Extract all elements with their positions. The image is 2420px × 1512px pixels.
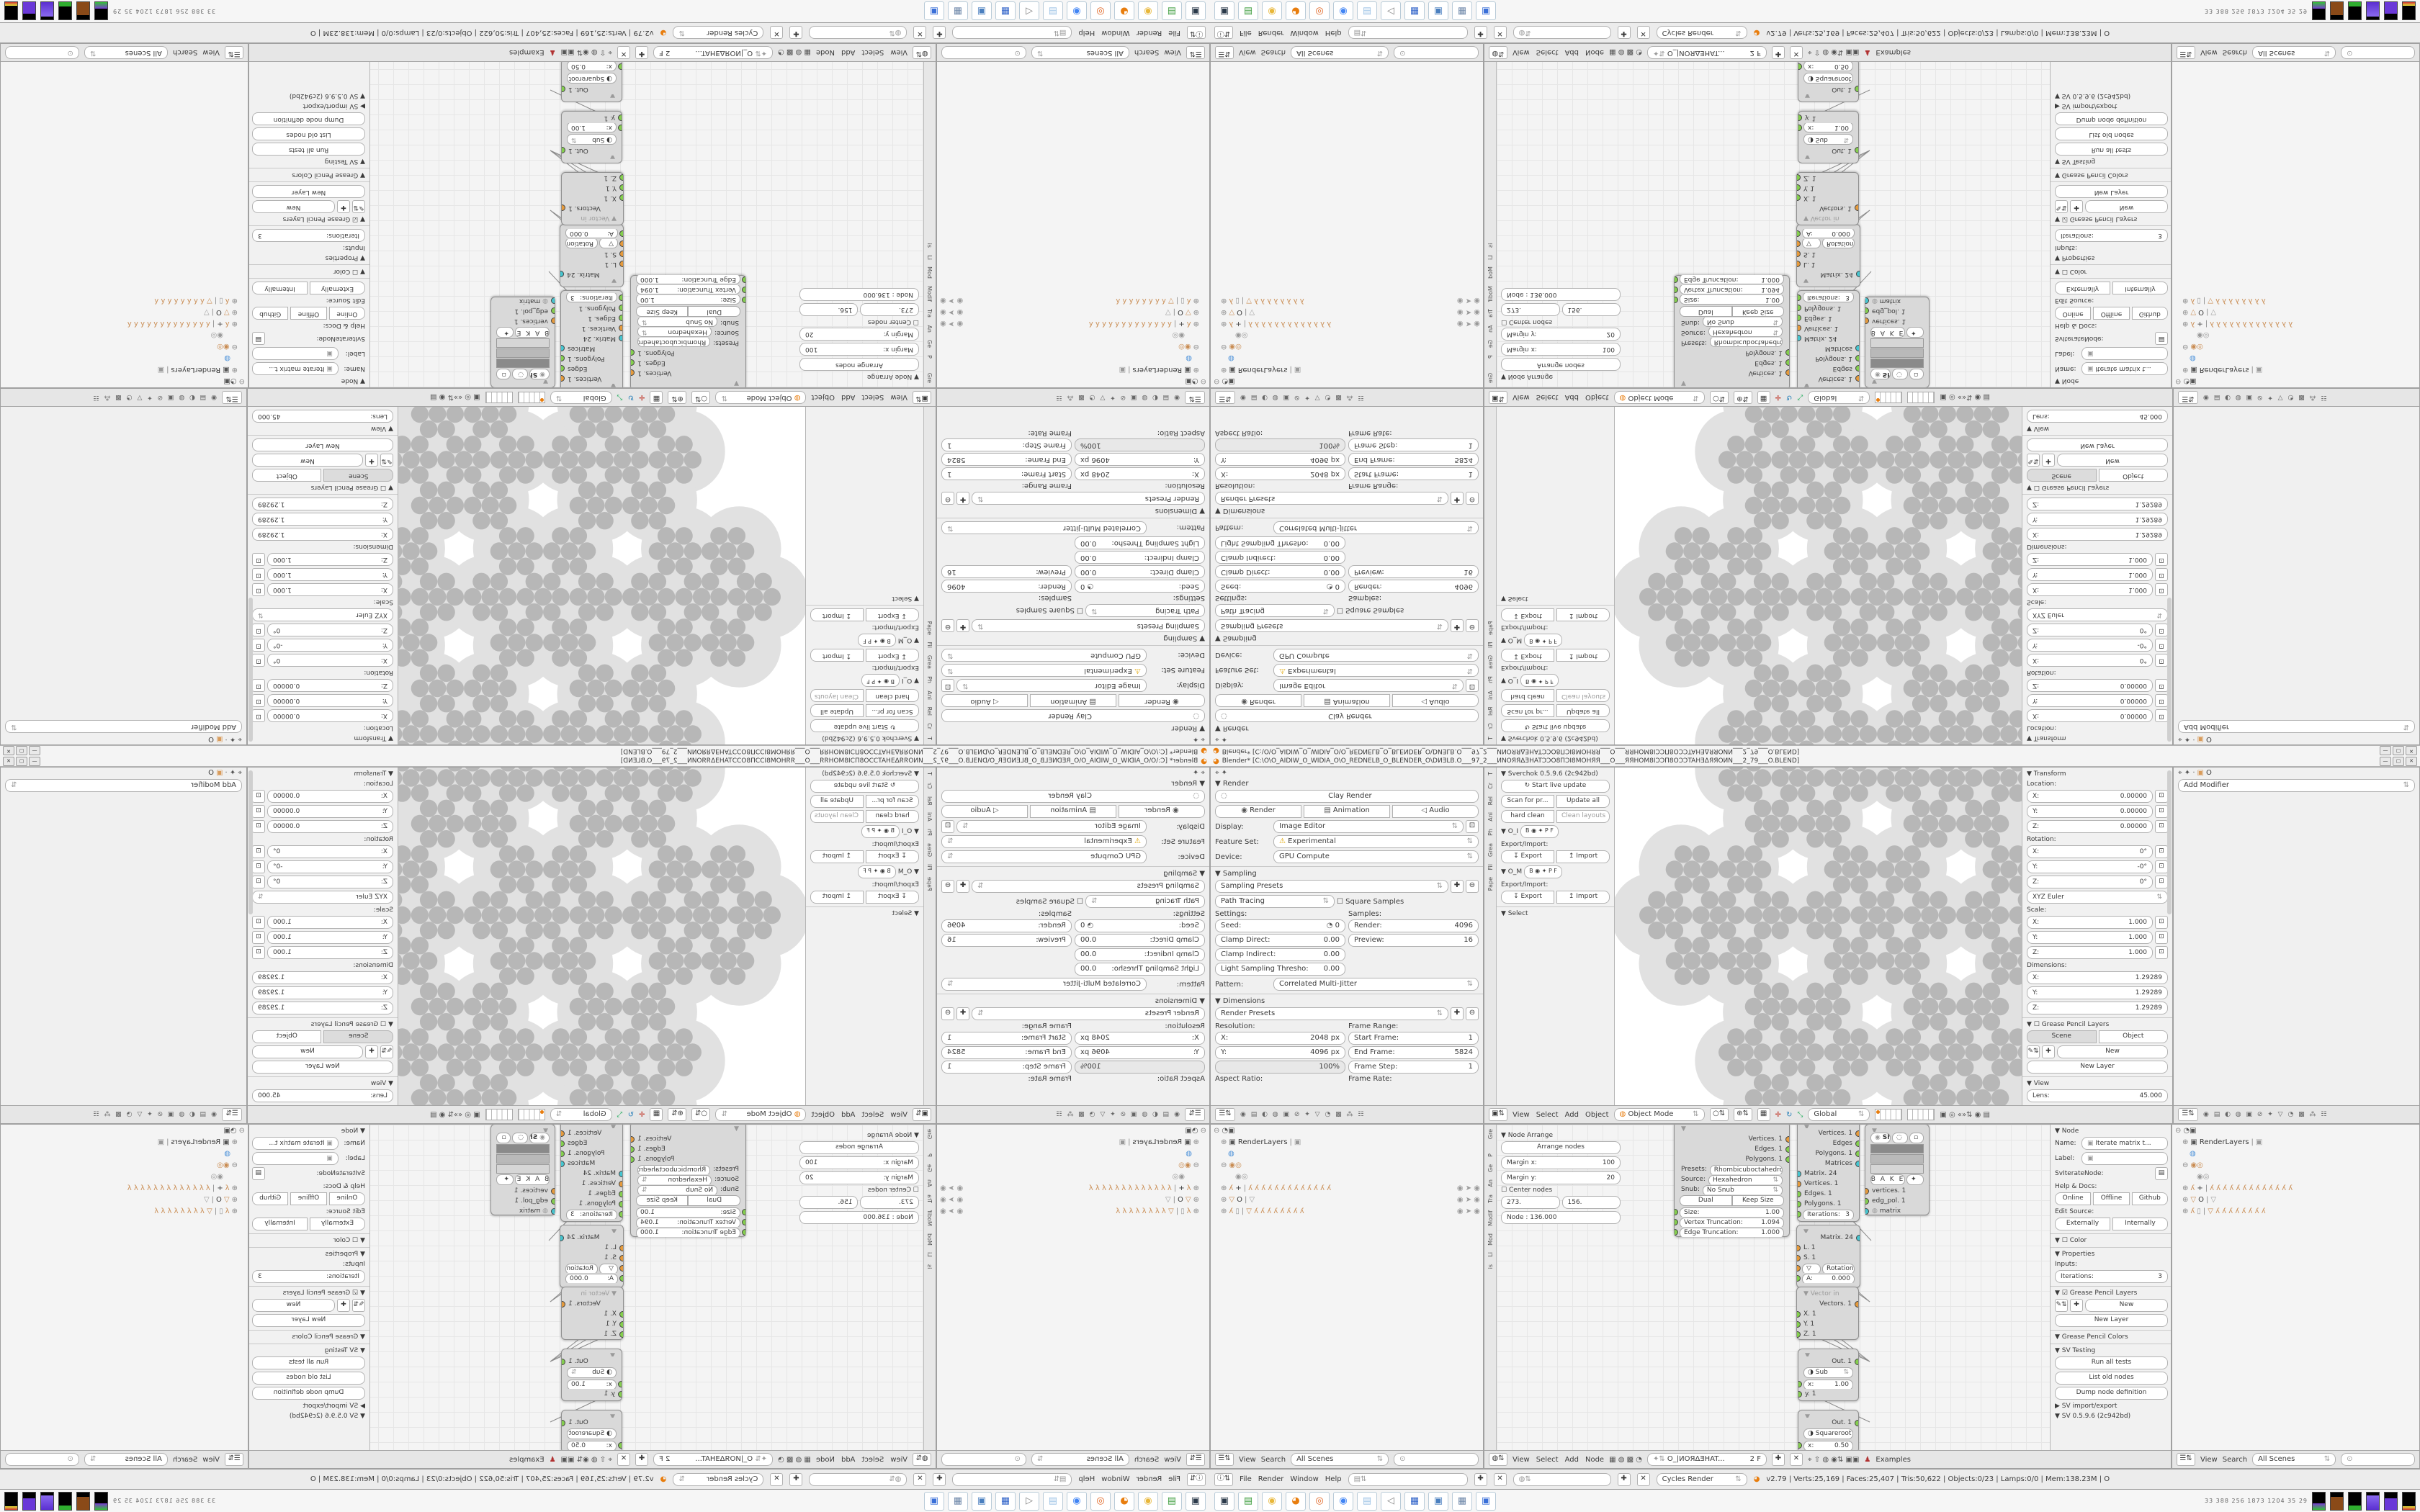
maximize-button[interactable]: ▢ — [2393, 747, 2404, 756]
gp-scene-toggle[interactable]: Scene — [2027, 469, 2097, 482]
world-icon[interactable]: ◍ — [1186, 355, 1192, 363]
gp-layers-panel-title[interactable]: ▼ ☑ Grease Pencil Layers — [2055, 1290, 2168, 1297]
menu-window[interactable]: Window — [1290, 29, 1318, 37]
margin-y-field[interactable]: Margin y:20 — [799, 1171, 919, 1184]
gp-new-layer-button[interactable]: New Layer — [252, 438, 393, 451]
render-presets-select[interactable]: Render Presets⇅ — [1215, 1007, 1448, 1020]
select-panel-title[interactable]: ▼ Select — [810, 910, 919, 917]
socket-in[interactable] — [1797, 261, 1801, 267]
feature-set-select[interactable]: ⚠ Experimental⇅ — [1273, 664, 1479, 677]
node-editor-tabs[interactable]: Gre PGe AnTra ModifMod Liis — [1484, 61, 1497, 387]
group-icon-gray[interactable]: ◉◎ — [2197, 1173, 2209, 1181]
gp-object-toggle[interactable]: Object — [2099, 1030, 2169, 1043]
gp-new-button[interactable]: New — [2057, 1045, 2168, 1058]
restrict-icons[interactable]: ◉ ➤ ◉ — [940, 309, 963, 317]
outliner-menu-search[interactable]: Search — [1261, 1456, 1286, 1464]
armature-run[interactable]: ▽ ʎ ʎ ʎ ʎ ʎ ʎ ʎ ʎ — [154, 297, 212, 305]
editor-type-button[interactable]: ☰⇅ — [222, 1108, 242, 1121]
rotation-select[interactable]: Rotation⇅ — [1822, 1264, 1855, 1273]
gp-pen-icon[interactable]: ✎⇅ — [380, 454, 393, 467]
gp-new-layer-button[interactable]: New Layer — [252, 1314, 365, 1327]
rotation-select[interactable]: Rotation⇅ — [565, 1264, 598, 1273]
node-class-button[interactable]: ▤ — [252, 1167, 265, 1180]
taskbar-window-app[interactable]: ▣ — [1476, 1492, 1496, 1511]
gp-new-layer-button[interactable]: New Layer — [252, 1061, 393, 1074]
lock-icon[interactable]: ⊡ — [2155, 709, 2168, 722]
lock-icon[interactable]: ⊡ — [252, 639, 265, 652]
end-frame-field[interactable]: End Frame:5824 — [1348, 1046, 1479, 1059]
node-panel-title[interactable]: ▼ Node — [2055, 377, 2168, 384]
res-y-field[interactable]: Y:4096 px — [1075, 1046, 1205, 1059]
clean-layouts-button[interactable]: Clean layouts — [810, 689, 864, 702]
gp-new-button[interactable]: New — [252, 1299, 335, 1312]
gp-layers-panel-title[interactable]: ▼ ☑ Grease Pencil Layers — [252, 1290, 365, 1297]
outliner-menu-search[interactable]: Search — [2223, 49, 2247, 57]
import-button1[interactable]: ↥ Import — [810, 850, 864, 863]
socket-in[interactable] — [619, 1255, 623, 1261]
sampling-panel-title[interactable]: ▼ Sampling — [1215, 870, 1479, 878]
vertex-trunc-field[interactable]: Vertex Truncation:1.094 — [1680, 1218, 1784, 1227]
render-panel-title[interactable]: ▼ Render — [941, 780, 1205, 788]
keep-size-button[interactable]: Keep Size — [636, 1195, 689, 1206]
source-select[interactable]: Hexahedron⇅ — [1708, 328, 1783, 337]
scrollbar[interactable] — [248, 598, 253, 742]
outliner-header[interactable]: ☰⇅ View Search All Scenes⇅ ⊙ — [1211, 44, 1483, 62]
restrict-icons[interactable]: ◉ ➤ ◉ — [940, 1207, 963, 1215]
renderlayer-icon[interactable]: ▣ — [1229, 366, 1235, 374]
maximize-button[interactable]: ▢ — [2393, 757, 2404, 766]
scene-add-button[interactable]: ✚ — [789, 27, 802, 40]
preview-samples-field[interactable]: Preview:16 — [941, 565, 1072, 578]
monitor-graph[interactable] — [40, 1492, 54, 1511]
loc-z-field[interactable]: Z:0.00000 — [2027, 679, 2153, 692]
restrict-icons[interactable]: ◉ ➤ ◉ — [1457, 297, 1480, 305]
renderlayers-item[interactable]: RenderLayers — [171, 1138, 220, 1146]
pivot-select[interactable]: ⊕⇅ — [1734, 391, 1752, 404]
monitor-graph[interactable] — [2348, 1492, 2362, 1511]
world-icon[interactable]: ◍ — [1186, 1150, 1192, 1158]
socket-out[interactable] — [1855, 1140, 1859, 1147]
pin-icon[interactable]: ⌖ ✦ · — [225, 769, 242, 777]
layers-grid-1[interactable] — [518, 392, 545, 403]
loc-x-field[interactable]: X:0.00000 — [267, 790, 393, 803]
taskbar-window-app[interactable]: ▣ — [924, 1492, 944, 1511]
offline-button[interactable]: Offline — [290, 1192, 326, 1205]
scene-add-button[interactable]: ✚ — [789, 1473, 802, 1486]
armature-object-icon[interactable]: ʎ — [225, 1184, 230, 1192]
scene-icon[interactable]: ◔▣ — [223, 1127, 236, 1135]
socket-out[interactable] — [562, 204, 565, 211]
renderlayers-item[interactable]: RenderLayers — [2200, 366, 2249, 374]
pivot-select[interactable]: ⊕⇅ — [668, 391, 686, 404]
manipulator-scale-icon[interactable]: ⤡ — [1797, 1111, 1803, 1119]
layout1-label[interactable]: ▼ O_I — [1501, 828, 1518, 835]
internally-button[interactable]: Internally — [2112, 1218, 2168, 1230]
render-engine-select[interactable]: Cycles Render⇅ — [673, 1473, 763, 1486]
node-hedron[interactable]: ▼ Vertices. 1 Edges. 1 Polygons. 1 Prese… — [630, 1125, 746, 1237]
display-select[interactable]: Image Editor⇅ — [956, 679, 1147, 692]
sampling-panel-title[interactable]: ▼ Sampling — [1215, 634, 1479, 642]
socket-out[interactable] — [562, 1301, 565, 1308]
renderlayer-icon[interactable]: ▣ — [1184, 1138, 1191, 1146]
start-frame-field[interactable]: Start Frame:1 — [941, 1032, 1072, 1045]
node-editor-header[interactable]: ◍⇅ View Select Add Node ▦ ◍ ▩ ◔ ✦⇅ O_|ИО… — [249, 1450, 936, 1468]
socket-in[interactable] — [1798, 1211, 1801, 1218]
loc-y-field[interactable]: Y:0.00000 — [2027, 694, 2153, 707]
group-icon-gray[interactable]: ◉◎ — [1235, 1173, 1247, 1181]
cone-data-icon[interactable]: ▽ — [1165, 1196, 1171, 1204]
cone-data-icon[interactable]: ▽ — [2210, 309, 2216, 317]
taskbar-chrome-2[interactable]: ◉ — [1067, 1492, 1087, 1511]
import-button2[interactable]: ↥ Import — [1556, 608, 1610, 621]
pattern-select[interactable]: Correlated Multi-Jitter⇅ — [1273, 521, 1479, 534]
res-pct-field[interactable]: 100% — [1215, 438, 1345, 451]
editor-type-button[interactable]: ☰⇅ — [1215, 391, 1235, 404]
add-modifier-select[interactable]: Add Modifier⇅ — [2178, 720, 2415, 733]
armature-run[interactable]: ▽ ʎ ʎ ʎ ʎ ʎ ʎ ʎ ʎ — [1246, 1207, 1304, 1215]
viewport-menu-view[interactable]: View — [890, 1111, 907, 1119]
keep-size-button[interactable]: Keep Size — [1732, 306, 1785, 317]
rotation-select[interactable]: Rotation⇅ — [565, 239, 598, 248]
scale-z-field[interactable]: Z:1.000 — [2027, 946, 2153, 959]
armature-run[interactable]: ʎ ʎ ʎ ʎ ʎ ʎ ʎ ʎ ʎ ʎ ʎ ʎ ʎ — [2210, 320, 2293, 328]
properties-header[interactable]: ☰⇅ ◉ ▤ ◐ ◍ ▣ ⊘ ✦ ▽ ◔ ▩ ⁂ ☷ — [2174, 1105, 2419, 1123]
viewer-btn-2[interactable]: ▫ — [1909, 369, 1924, 379]
monitor-graph[interactable] — [58, 2, 72, 21]
iterations-field[interactable]: Iterations:3 — [252, 1270, 365, 1283]
lock-icon[interactable]: ⊡ — [2155, 654, 2168, 667]
animation-button[interactable]: ▤ Animation — [1304, 805, 1390, 818]
gp-pen-icon[interactable]: ✎⇅ — [380, 1045, 393, 1058]
loc-z-field[interactable]: Z:0.00000 — [267, 679, 393, 692]
screen-add-button[interactable]: ✚ — [1474, 1473, 1487, 1486]
add-modifier-select[interactable]: Add Modifier⇅ — [2178, 779, 2415, 792]
sv-version-title[interactable]: ▼ SV 0.5.9.6 (2c942bd) — [2055, 1413, 2168, 1420]
list-old-nodes-button[interactable]: List old nodes — [252, 1372, 365, 1385]
socket-in[interactable] — [1865, 1188, 1869, 1194]
gp-layers-panel-title[interactable]: ▼ ☑ Grease Pencil Layers — [2055, 215, 2168, 222]
render-presets-select[interactable]: Render Presets⇅ — [972, 492, 1205, 505]
viewport-menu-add[interactable]: Add — [841, 394, 855, 402]
socket-in[interactable] — [551, 1188, 555, 1194]
renderlayer-icon-2[interactable]: ▣ — [1294, 1138, 1301, 1146]
sverchok-panel-title[interactable]: ▼ Sverchok 0.5.9.6 (2c942bd) — [1501, 770, 1610, 778]
github-button[interactable]: Github — [252, 1192, 288, 1205]
monitor-graph[interactable] — [2312, 2, 2326, 21]
render-engine-select[interactable]: Cycles Render⇅ — [673, 27, 763, 40]
lens-field[interactable]: Lens:45.000 — [2027, 410, 2168, 423]
layout2-label[interactable]: ▼ O_M — [898, 868, 919, 876]
end-frame-field[interactable]: End Frame:5824 — [941, 1046, 1072, 1059]
clay-render-field[interactable]: ◌ Clay Render — [1215, 709, 1479, 722]
scene-add-button[interactable]: ✚ — [1618, 27, 1631, 40]
lock-icon[interactable]: ⊡ — [2155, 946, 2168, 959]
gp-pen-icon[interactable]: ✎⇅ — [2055, 200, 2068, 213]
menu-window[interactable]: Window — [1101, 29, 1129, 37]
rot-y-field[interactable]: Y:-0° — [267, 860, 393, 873]
res-pct-field[interactable]: 100% — [1075, 438, 1205, 451]
socket-out[interactable] — [1855, 1161, 1859, 1167]
gp-pen-icon[interactable]: ✎⇅ — [2055, 1299, 2068, 1312]
pattern-select[interactable]: Correlated Multi-Jitter⇅ — [941, 521, 1147, 534]
rot-y-field[interactable]: Y:-0° — [267, 639, 393, 652]
orientation-select[interactable]: Global⇅ — [550, 1108, 612, 1121]
internally-button[interactable]: Internally — [2112, 282, 2168, 294]
node-editor[interactable]: Gre PGe AnTra ModifMod Liis ▼ Vertices. … — [1484, 1124, 2172, 1469]
editor-type-button[interactable]: ☰⇅ — [2178, 1108, 2198, 1121]
menu-file[interactable]: File — [1240, 29, 1252, 37]
lock-icon[interactable]: ⊡ — [2155, 583, 2168, 596]
taskbar-dosbox[interactable]: ▦ — [1404, 1492, 1425, 1511]
display-select[interactable]: Image Editor⇅ — [1273, 679, 1464, 692]
socket-out[interactable] — [561, 1130, 565, 1137]
socket-in[interactable] — [619, 174, 623, 181]
math-op-select[interactable]: ◑ Sub⇅ — [1803, 134, 1853, 145]
render-presets-select[interactable]: Render Presets⇅ — [972, 1007, 1205, 1020]
pin-icon[interactable]: ⌖ — [1201, 769, 1205, 777]
bake-button[interactable]: B A K E — [1870, 1174, 1905, 1185]
node-editor-tabs[interactable]: Gre PGe AnTra ModifMod Liis — [923, 1125, 936, 1451]
res-x-field[interactable]: X:2048 px — [1075, 467, 1205, 480]
scrollbar[interactable] — [2167, 598, 2172, 742]
scene-icon[interactable]: ◔▣ — [1185, 378, 1198, 386]
socket-out[interactable] — [1855, 204, 1858, 211]
import-button2[interactable]: ↥ Import — [1556, 891, 1610, 904]
taskbar-notepad[interactable]: ▤ — [1043, 2, 1063, 21]
x-field[interactable]: x:1.00 — [567, 123, 617, 132]
lock-icon[interactable]: ⊡ — [252, 694, 265, 707]
res-x-field[interactable]: X:2048 px — [1215, 467, 1345, 480]
show-toggle[interactable]: ◉ Show — [529, 369, 550, 379]
socket-in[interactable] — [1797, 184, 1801, 191]
angle-field[interactable]: A:0.000 — [565, 1274, 618, 1283]
socket-out[interactable] — [561, 345, 565, 351]
arrange-field-1[interactable]: 273. — [861, 1196, 920, 1209]
socket-out[interactable] — [1856, 1235, 1860, 1241]
scene-select[interactable]: ◍⇅ — [809, 1473, 907, 1486]
preview-samples-field[interactable]: Preview:16 — [1348, 934, 1479, 947]
sverchok-panel-title[interactable]: ▼ Sverchok 0.5.9.6 (2c942bd) — [1501, 734, 1610, 742]
node-matrix-in[interactable]: ▼ Matrix. 24 L. 1 S. 1 ▽ Rotation⇅ A:0.0… — [560, 1225, 624, 1288]
group-icon-gray[interactable]: ◉◎ — [2197, 332, 2209, 340]
layout1-label[interactable]: ▼ O_I — [902, 677, 919, 684]
gp-new-button[interactable]: New — [252, 454, 363, 467]
view-panel-title[interactable]: ▼ View — [252, 1080, 393, 1087]
rot-z-field[interactable]: Z:0° — [267, 876, 393, 888]
taskbar-spiral-app[interactable]: ◎ — [1309, 2, 1330, 21]
list-old-nodes-button[interactable]: List old nodes — [2055, 1372, 2168, 1385]
gp-add-icon[interactable]: ✚ — [2070, 1299, 2083, 1312]
res-y-field[interactable]: Y:4096 px — [1075, 453, 1205, 466]
socket-in[interactable] — [619, 315, 622, 321]
outliner-search-input[interactable]: ⊙ — [2341, 1453, 2415, 1466]
socket-in[interactable] — [619, 305, 622, 311]
scene-add-button[interactable]: ✚ — [1618, 1473, 1631, 1486]
edge-color-swatch[interactable] — [496, 348, 550, 358]
armature-object-icon[interactable]: ʎ — [2190, 320, 2195, 328]
iterations-field[interactable]: Iterations:3 — [566, 293, 617, 302]
add-modifier-select[interactable]: Add Modifier⇅ — [5, 779, 242, 792]
node-iterate-matrix[interactable]: ▼ Vertices. 1 Edges Polygons. 1 Matrices… — [1797, 1125, 1860, 1222]
socket-out[interactable] — [562, 1420, 565, 1426]
gp-new-button[interactable]: New — [2057, 454, 2168, 467]
node-math-sub[interactable]: ▼ Out. 1 ◑ Sub⇅ x:1.00 y. 1 — [1798, 111, 1859, 163]
margin-y-field[interactable]: Margin y:20 — [799, 328, 919, 341]
properties-header[interactable]: ☰⇅ ◉ ▤ ◐ ◍ ▣ ⊘ ✦ ▽ ◔ ▩ ⁂ ☷ — [937, 389, 1209, 407]
viewport-3d[interactable]: TCr RelAni PhGrea FilPape ▼ Sverchok 0.5… — [247, 767, 936, 1124]
math-op-select[interactable]: ◑ Sub⇅ — [567, 1367, 617, 1378]
outliner-menu-search[interactable]: Search — [173, 49, 197, 57]
preset-remove-button[interactable]: ⊖ — [1466, 880, 1479, 893]
clay-render-field[interactable]: ◌ Clay Render — [941, 790, 1205, 803]
socket-in[interactable] — [618, 114, 622, 121]
vertex-color-swatch[interactable] — [496, 1144, 550, 1153]
group-icon-gray[interactable]: ◉◎ — [211, 1173, 223, 1181]
monitor-graph[interactable] — [76, 2, 90, 21]
math-op-select[interactable]: ◑ Sub⇅ — [1803, 1367, 1853, 1378]
layout2-label[interactable]: ▼ O_M — [1501, 868, 1522, 876]
preset-remove-button[interactable]: ⊖ — [941, 880, 954, 893]
audio-button[interactable]: ◁ Audio — [941, 805, 1028, 818]
socket-in[interactable] — [1797, 194, 1801, 201]
renderlayer-icon[interactable]: ▣ — [1229, 1138, 1235, 1146]
lock-icon[interactable]: ⊡ — [252, 931, 265, 944]
monitor-graph[interactable] — [2312, 1492, 2326, 1511]
display-lock-icon[interactable]: ⊡ — [1466, 679, 1479, 692]
export-button2[interactable]: ↧ Export — [866, 608, 919, 621]
monitor-graph[interactable] — [2384, 2, 2398, 21]
window-titlebar[interactable]: ◕ Blender* [C:\O\O_AIDIW_O_WIDIA_O\O_RED… — [1210, 745, 2420, 756]
properties-header[interactable]: ☰⇅ ◉ ▤ ◐ ◍ ▣ ⊘ ✦ ▽ ◔ ▩ ⁂ ☷ — [1211, 389, 1483, 407]
manipulator-rotate-icon[interactable]: ↻ — [628, 1111, 634, 1119]
presets-select[interactable]: Rhombicuboctahedron⇅ — [637, 1165, 710, 1174]
viewport-menu-view[interactable]: View — [890, 394, 907, 402]
taskbar-volume[interactable]: ◁ — [1019, 1492, 1039, 1511]
update-all-button[interactable]: Update all — [1556, 704, 1610, 717]
node-label-field[interactable]: ▣ — [2081, 1152, 2168, 1165]
socket-in[interactable] — [618, 63, 622, 70]
screen-add-button[interactable]: ✚ — [933, 1473, 946, 1486]
tree-type-icons[interactable]: ▦ ◍ ▩ ◔ — [778, 1456, 811, 1464]
socket-in[interactable] — [551, 297, 555, 304]
tree-type-icons[interactable]: ▦ ◍ ▩ ◔ — [778, 49, 811, 57]
socket-in[interactable] — [619, 261, 623, 267]
node-width-field[interactable]: Node : 136.000 — [799, 288, 919, 301]
socket-in[interactable] — [742, 1219, 745, 1225]
viewport-editor-type-button[interactable]: ▣⇅ — [1489, 391, 1507, 404]
socket-in[interactable] — [619, 1191, 622, 1197]
gp-layers-panel-title[interactable]: ▼ ☐ Grease Pencil Layers — [252, 1021, 393, 1028]
armature-object-icon[interactable]: ʎ — [1229, 297, 1233, 305]
node-name-field[interactable]: ▣ Iterate matrix t... — [252, 362, 339, 375]
socket-in[interactable] — [619, 1265, 623, 1272]
taskbar-chrome[interactable]: ◉ — [1138, 1492, 1158, 1511]
sv-testing-panel-title[interactable]: ▼ SV Testing — [2055, 158, 2168, 165]
node-viewer-draw[interactable]: ▼ ◉ Show ◌ ▫ B A K E ✦ vertices. 1 edg_p… — [1865, 297, 1930, 387]
x-field[interactable]: x:0.50 — [567, 1441, 617, 1450]
scene-icon[interactable]: ◔▣ — [2183, 1127, 2196, 1135]
outliner-scope-select[interactable]: All Scenes⇅ — [84, 1453, 168, 1466]
taskbar-blender[interactable]: ◕ — [1286, 2, 1306, 21]
socket-in[interactable] — [742, 297, 745, 303]
viewport-misc-icons[interactable]: ▣ ◎ «»⇅ ◉ ▤ — [430, 1111, 480, 1119]
socket-in[interactable] — [1798, 305, 1801, 311]
node-matrix-in[interactable]: ▼ Matrix. 24 L. 1 S. 1 ▽ Rotation⇅ A:0.0… — [1796, 224, 1860, 287]
color-panel-title[interactable]: ▼ ☐ Color — [2055, 1237, 2168, 1244]
preset-remove-button[interactable]: ⊖ — [941, 619, 954, 632]
clay-render-field[interactable]: ◌ Clay Render — [1215, 790, 1479, 803]
tree-unlink-button[interactable]: ✕ — [617, 46, 630, 59]
audio-button[interactable]: ◁ Audio — [1392, 805, 1479, 818]
properties-panel-title[interactable]: ▼ Properties — [252, 1251, 365, 1258]
sverchok-header-icons[interactable]: ⌖ ⇧ ◍ ◉⇅ ▣▣ — [1808, 49, 1859, 57]
axis-drop[interactable]: ▽ — [599, 1264, 618, 1273]
dim-x-field[interactable]: X:1.29289 — [2027, 971, 2168, 984]
properties-header[interactable]: ☰⇅ ◉ ▤ ◐ ◍ ▣ ⊘ ✦ ▽ ◔ ▩ ⁂ ☷ — [1, 389, 246, 407]
externally-button[interactable]: Externally — [2055, 1218, 2110, 1230]
dimensions-panel-title[interactable]: ▼ Dimensions — [1215, 997, 1479, 1005]
group-icon[interactable]: ◉◎ — [217, 343, 229, 351]
renderlayer-icon[interactable]: ▣ — [2190, 1138, 2197, 1146]
menu-help[interactable]: Help — [1325, 1475, 1342, 1483]
viewer-btn-1[interactable]: ◌ — [512, 1133, 528, 1143]
render-button[interactable]: ◉ Render — [1215, 694, 1301, 707]
polygon-color-swatch[interactable] — [496, 1164, 550, 1174]
clay-render-field[interactable]: ◌ Clay Render — [941, 709, 1205, 722]
run-all-tests-button[interactable]: Run all tests — [2055, 1356, 2168, 1369]
gp-new-layer-button[interactable]: New Layer — [2055, 185, 2168, 198]
outliner-editor-type-button[interactable]: ☰⇅ — [2177, 1453, 2195, 1466]
node-width-field[interactable]: Node : 136.000 — [799, 1211, 919, 1224]
socket-in[interactable] — [619, 335, 622, 341]
scene-icon[interactable]: ◔▣ — [1185, 1127, 1198, 1135]
tree-add-button[interactable]: ✚ — [635, 1453, 648, 1466]
shading-select[interactable]: ○⇅ — [691, 1108, 710, 1121]
run-all-tests-button[interactable]: Run all tests — [252, 1356, 365, 1369]
socket-in[interactable] — [742, 276, 745, 283]
tool-icon[interactable]: ✦ — [1222, 735, 1227, 743]
lock-icon[interactable]: ⊡ — [252, 568, 265, 581]
layout1-label[interactable]: ▼ O_I — [902, 828, 919, 835]
rot-y-field[interactable]: Y:-0° — [2027, 860, 2153, 873]
viewport-misc-icons[interactable]: ▣ ◎ «»⇅ ◉ ▤ — [430, 394, 480, 402]
seed-field[interactable]: Seed:◔ 0 — [1215, 919, 1345, 932]
rot-x-field[interactable]: X:0° — [267, 654, 393, 667]
socket-in[interactable] — [1797, 1265, 1801, 1272]
end-frame-field[interactable]: End Frame:5824 — [941, 453, 1072, 466]
socket-in[interactable] — [1798, 1181, 1801, 1187]
frame-step-field[interactable]: Frame Step:1 — [941, 438, 1072, 451]
gp-add-icon[interactable]: ✚ — [2042, 454, 2055, 467]
window-titlebar[interactable]: ◕ Blender* [C:\O\O_AIDIW_O_WIDIA_O\O_RED… — [0, 745, 1210, 756]
arrange-field-2[interactable]: 156. — [1562, 1196, 1621, 1209]
outliner-search-input[interactable]: ⊙ — [1394, 1453, 1479, 1466]
screen-layout-select[interactable]: ▤⇅ — [1348, 27, 1468, 40]
polygon-color-swatch[interactable] — [1870, 1164, 1924, 1174]
armature-object-icon[interactable]: ʎ — [2190, 297, 2195, 305]
minimize-button[interactable]: — — [2380, 747, 2391, 756]
menu-help[interactable]: Help — [1078, 29, 1095, 37]
presets-select[interactable]: Rhombicuboctahedron⇅ — [1710, 1165, 1783, 1174]
scene-select[interactable]: ◍⇅ — [1513, 1473, 1611, 1486]
scale-y-field[interactable]: Y:1.000 — [2027, 931, 2153, 944]
socket-in[interactable] — [618, 1381, 622, 1387]
dim-y-field[interactable]: Y:1.29289 — [2027, 513, 2168, 526]
group-icon[interactable]: ◉◎ — [1178, 1161, 1191, 1169]
armature-object-icon[interactable]: ʎ — [1229, 1184, 1233, 1192]
outliner-menu-search[interactable]: Search — [1261, 49, 1286, 57]
restrict-icons[interactable]: ◉ ➤ ◉ — [940, 297, 963, 305]
